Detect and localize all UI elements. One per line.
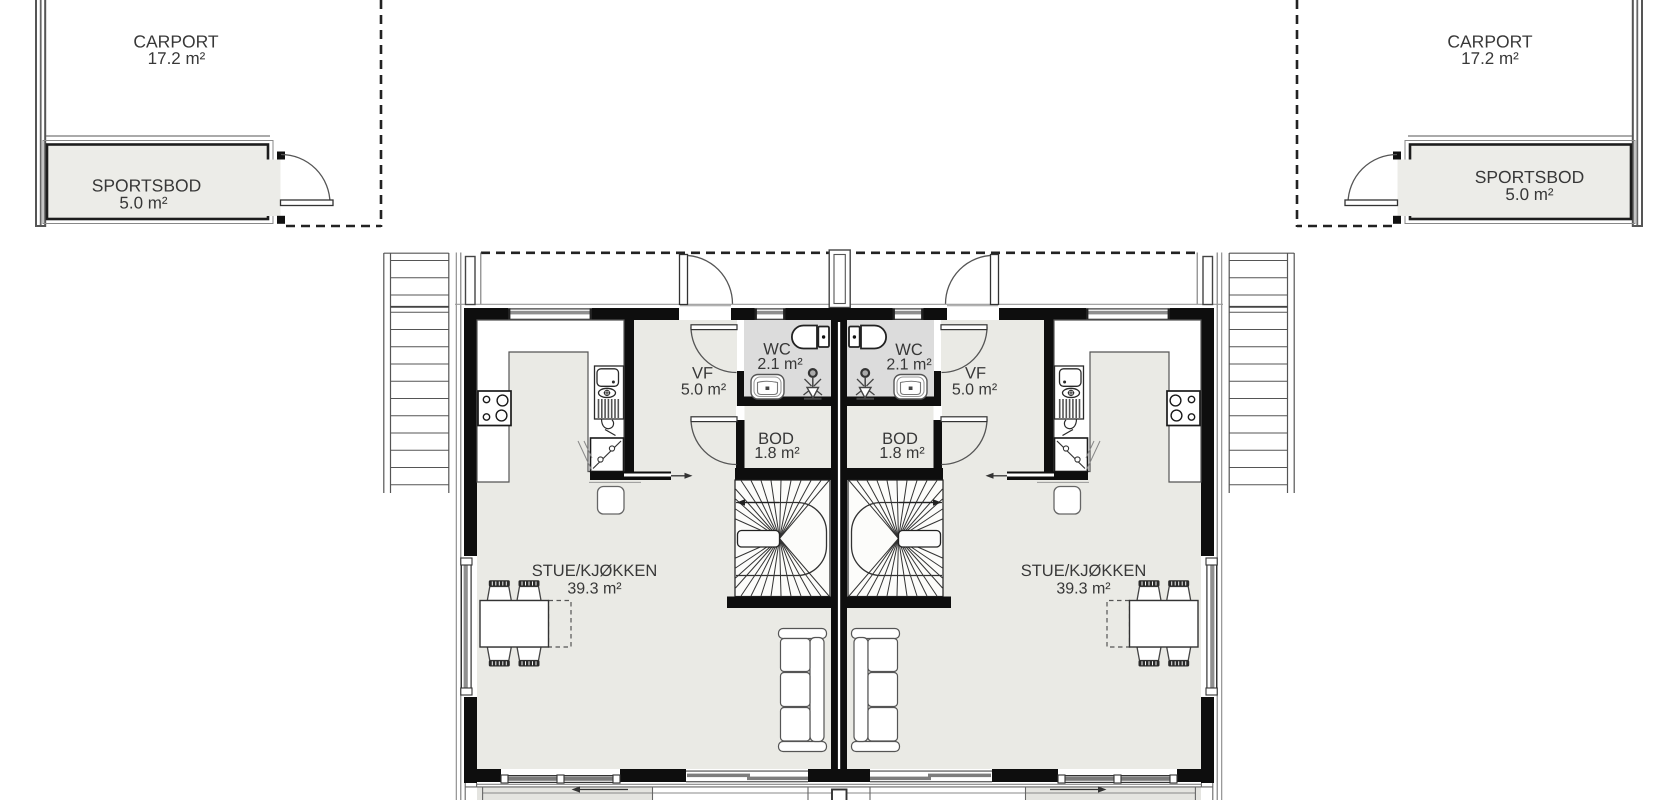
svg-text:2.1 m²: 2.1 m² — [886, 357, 932, 374]
svg-text:VF: VF — [965, 365, 986, 383]
svg-text:5.0 m²: 5.0 m² — [1505, 185, 1554, 204]
svg-text:2.1 m²: 2.1 m² — [757, 356, 803, 373]
svg-text:SPORTSBOD: SPORTSBOD — [92, 176, 202, 196]
svg-text:1.8 m²: 1.8 m² — [754, 445, 800, 462]
svg-text:39.3 m²: 39.3 m² — [1056, 581, 1111, 598]
svg-text:5.0 m²: 5.0 m² — [952, 382, 998, 399]
svg-text:17.2 m²: 17.2 m² — [1461, 49, 1519, 68]
svg-text:17.2 m²: 17.2 m² — [148, 49, 206, 68]
svg-text:STUE/KJØKKEN: STUE/KJØKKEN — [1021, 562, 1147, 580]
svg-text:39.3 m²: 39.3 m² — [567, 581, 622, 598]
svg-text:SPORTSBOD: SPORTSBOD — [1475, 167, 1585, 187]
svg-text:1.8 m²: 1.8 m² — [879, 445, 925, 462]
svg-text:STUE/KJØKKEN: STUE/KJØKKEN — [532, 562, 658, 580]
svg-text:5.0 m²: 5.0 m² — [681, 382, 727, 399]
svg-text:5.0 m²: 5.0 m² — [119, 194, 168, 213]
svg-text:VF: VF — [692, 365, 713, 383]
